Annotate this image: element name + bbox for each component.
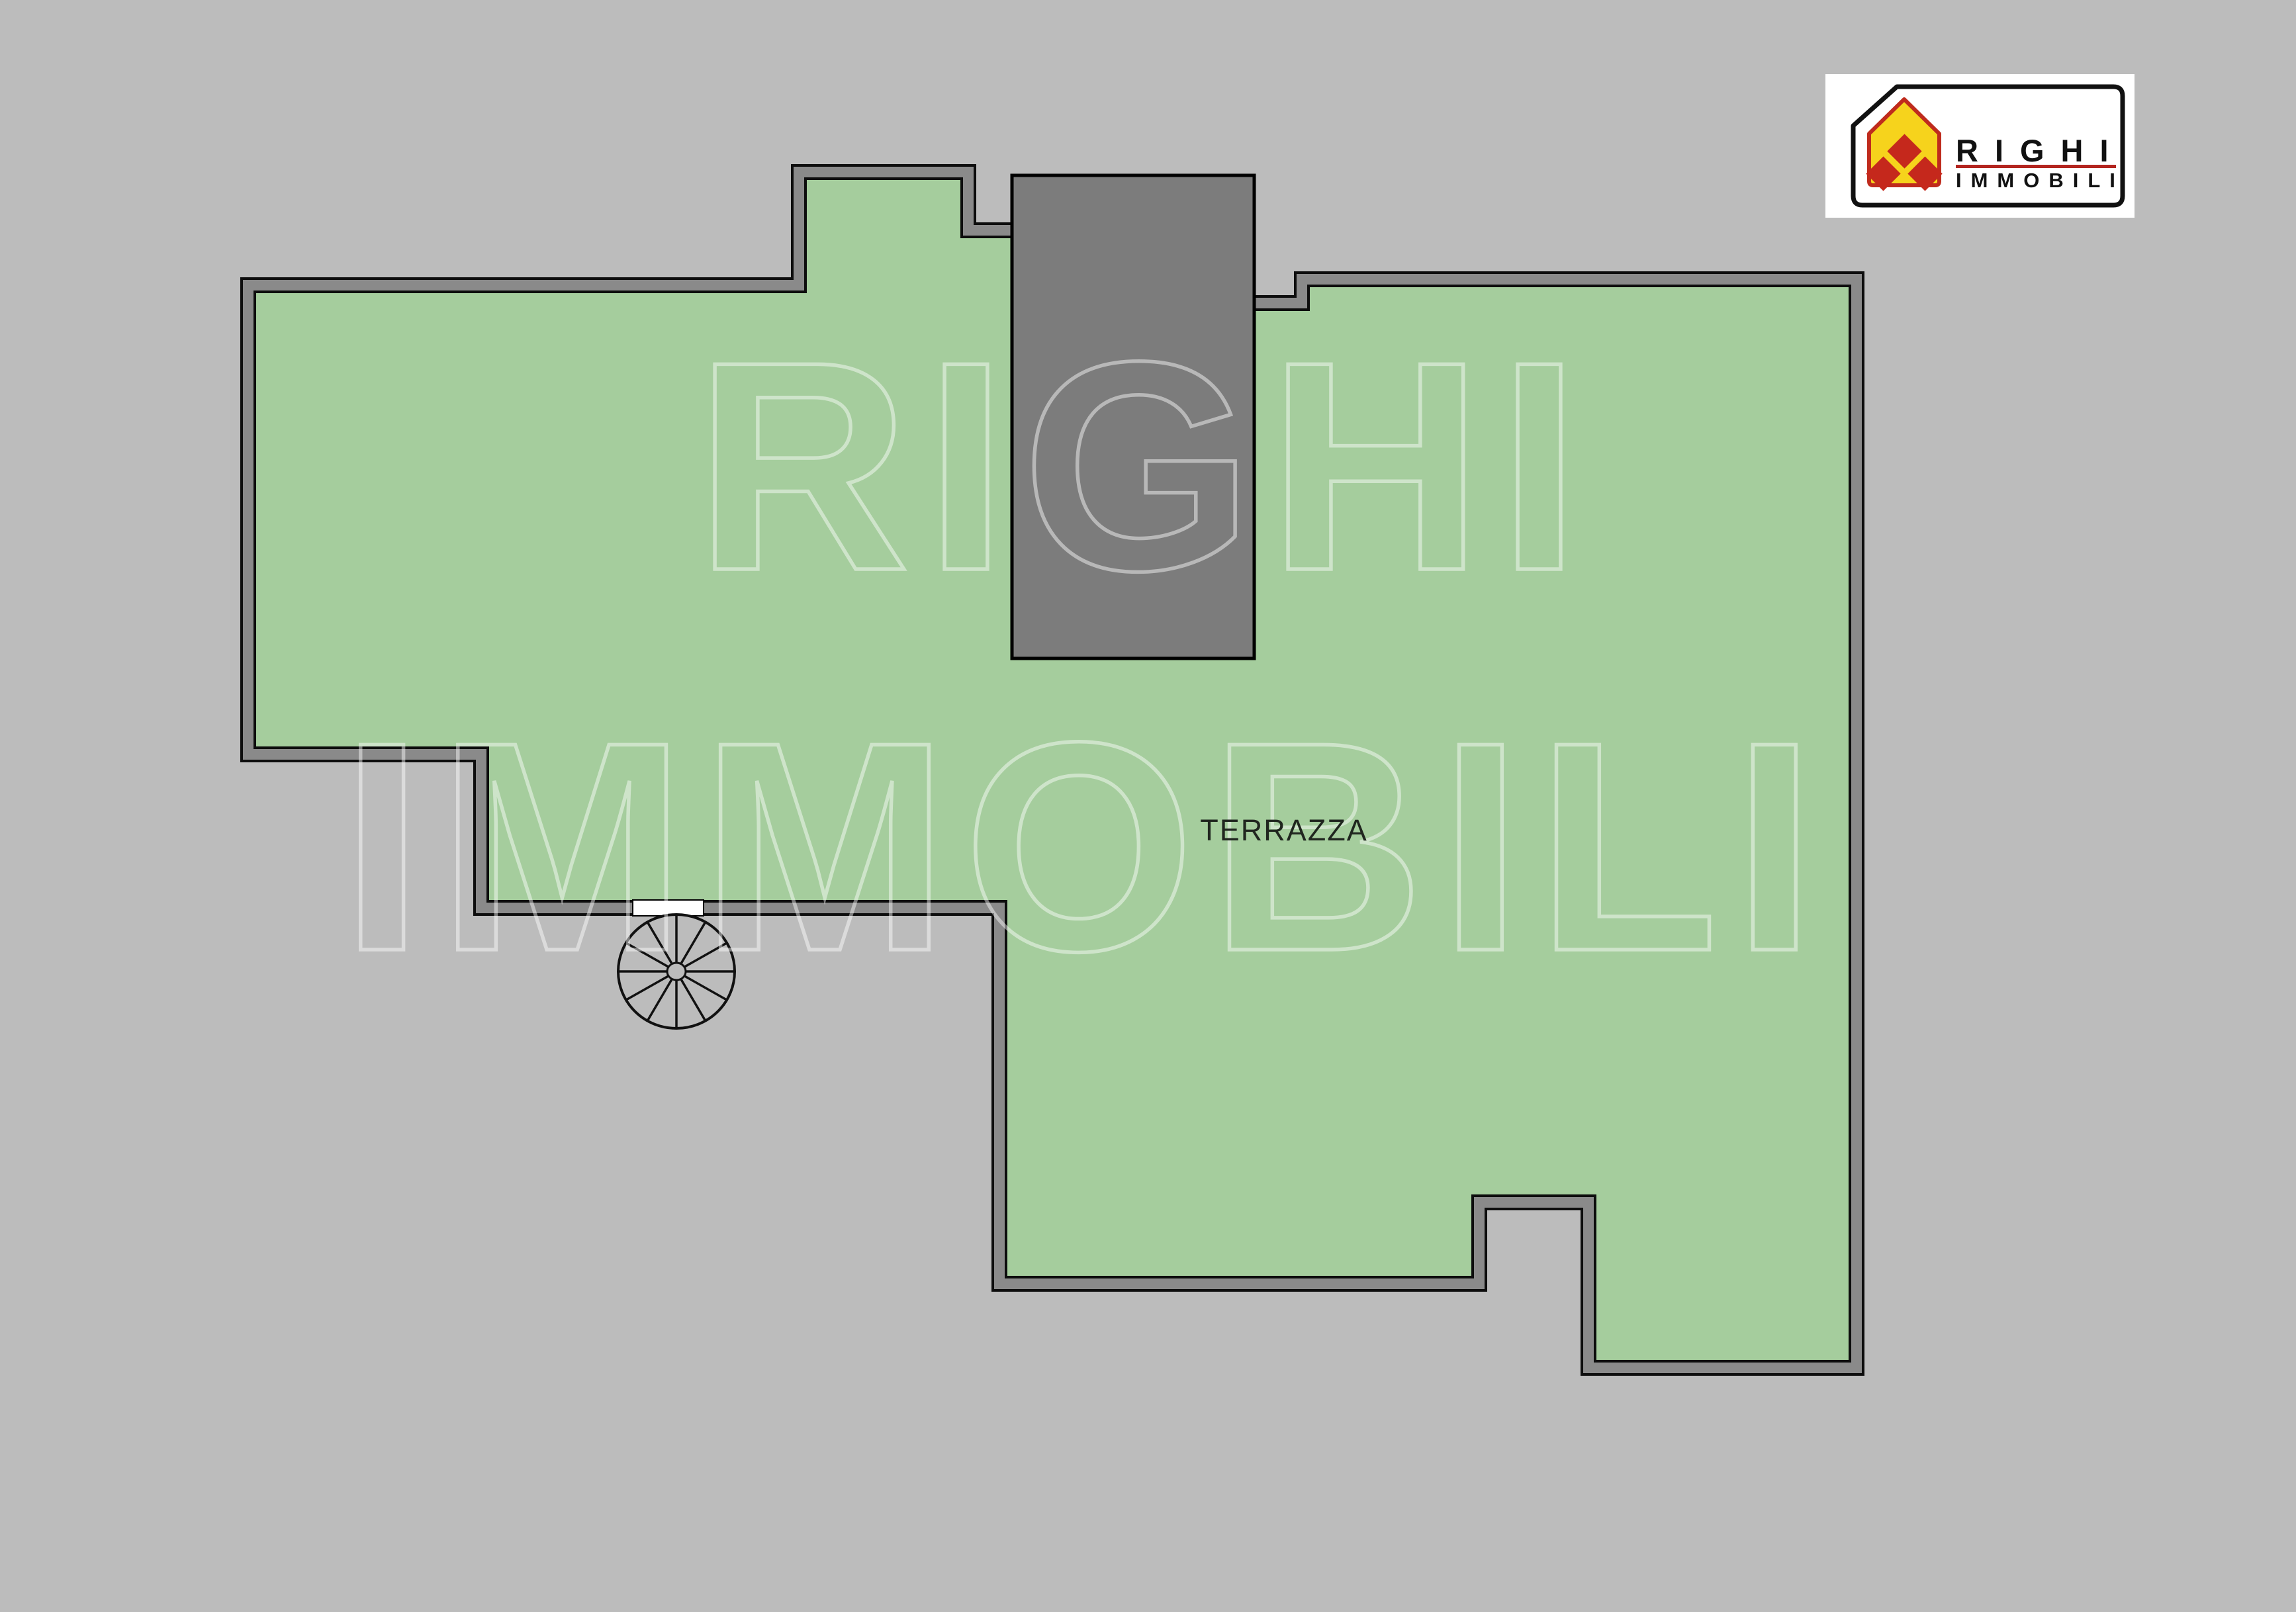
logo-subtitle: IMMOBILI bbox=[1956, 169, 2125, 192]
floorplan-svg: RIGHI IMMOBILI TERRAZZA RIGHI IMMOBILI bbox=[0, 0, 2296, 1612]
logo-name: RIGHI bbox=[1956, 133, 2125, 168]
watermark-line1: RIGHI bbox=[695, 300, 1595, 633]
logo-underline bbox=[1956, 165, 2116, 168]
floorplan-page: RIGHI IMMOBILI TERRAZZA RIGHI IMMOBILI bbox=[0, 0, 2296, 1612]
room-label: TERRAZZA bbox=[1200, 813, 1368, 847]
agency-logo: RIGHI IMMOBILI bbox=[1825, 74, 2135, 218]
watermark-line2: IMMOBILI bbox=[341, 681, 1831, 1013]
